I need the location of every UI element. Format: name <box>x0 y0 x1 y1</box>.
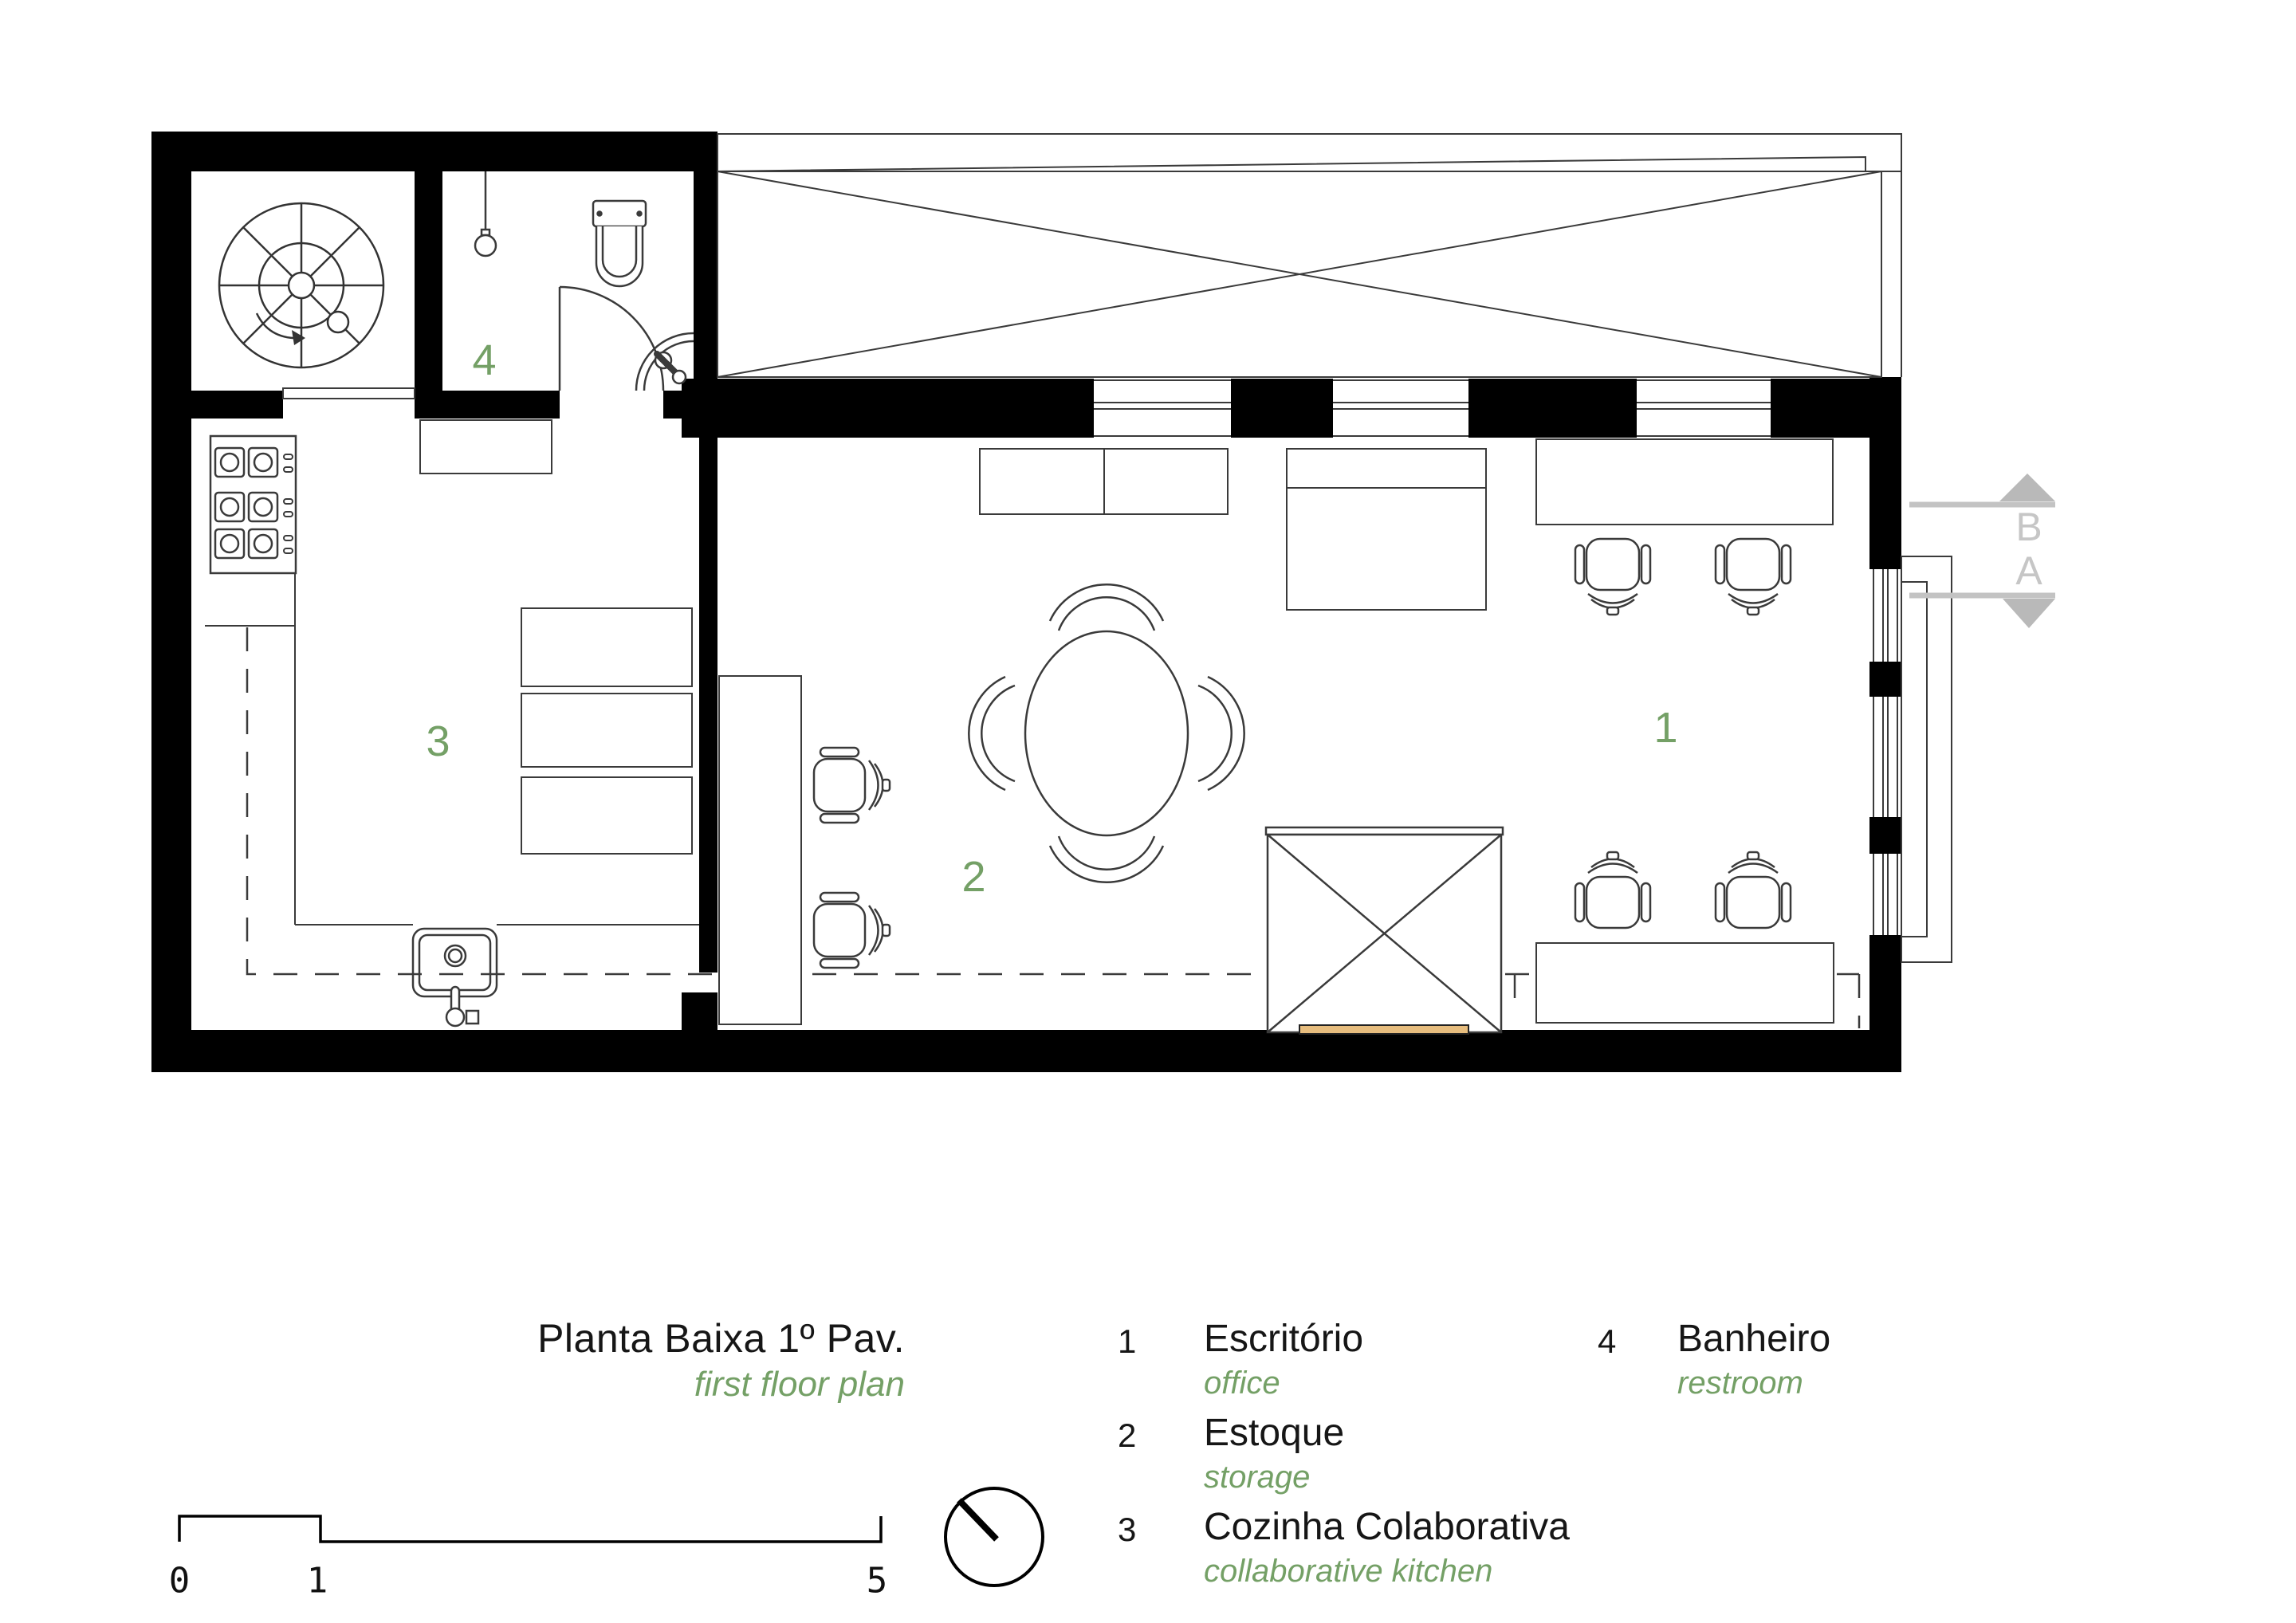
floor-plan-page: 1 2 3 4 B A Planta Baixa 1º Pav. first f… <box>0 0 2296 1623</box>
windows-right-wall <box>1873 569 1897 935</box>
office-chair <box>1575 852 1650 928</box>
stair-ledge <box>283 388 415 399</box>
legend-name: Cozinha Colaborativa <box>1204 1507 1570 1547</box>
section-letter-b: B <box>2015 504 2042 550</box>
legend-number: 2 <box>1118 1413 1204 1455</box>
legend-translation: storage <box>1204 1461 1344 1493</box>
page-subtitle: first floor plan <box>399 1366 905 1404</box>
table-chair <box>1198 677 1244 790</box>
room-label-kitchen: 3 <box>426 717 450 766</box>
legend-item-office: 1 Escritório office <box>1118 1319 1363 1399</box>
legend-name: Estoque <box>1204 1413 1344 1453</box>
bathroom-door <box>560 287 663 391</box>
walls <box>151 132 1901 1072</box>
side-cabinet <box>1287 449 1486 610</box>
office-chair <box>814 748 890 823</box>
section-letter-a: A <box>2015 548 2042 594</box>
table-chair <box>1050 584 1163 631</box>
void-hatched-area <box>717 134 1901 377</box>
office-chair <box>1575 539 1650 615</box>
legend-item-storage: 2 Estoque storage <box>1118 1413 1344 1493</box>
title-block: Planta Baixa 1º Pav. first floor plan <box>399 1317 905 1404</box>
office-chair <box>1716 539 1791 615</box>
legend-item-kitchen: 3 Cozinha Colaborativa collaborative kit… <box>1118 1507 1570 1587</box>
table-chair <box>969 677 1015 790</box>
legend-name: Banheiro <box>1677 1319 1830 1359</box>
room-label-office: 1 <box>1653 703 1678 753</box>
section-arrow-down-icon <box>2003 599 2055 628</box>
storage-desk <box>719 676 801 1024</box>
windows-middle-wall <box>1094 380 1771 436</box>
round-table <box>1025 631 1188 835</box>
legend-translation: restroom <box>1677 1367 1830 1399</box>
kitchen-sink <box>413 929 497 1026</box>
legend-item-restroom: 4 Banheiro restroom <box>1598 1319 1830 1399</box>
scale-label-0: 0 <box>169 1561 191 1601</box>
kitchen-cabinets <box>521 608 692 854</box>
office-desk-bottom <box>1536 943 1834 1023</box>
scale-label-5: 5 <box>867 1561 888 1601</box>
wall-cabinet <box>980 449 1228 514</box>
north-arrow-icon <box>946 1488 1043 1586</box>
legend-number: 3 <box>1118 1507 1204 1549</box>
scale-bar <box>179 1516 881 1542</box>
section-arrow-up-icon <box>1999 474 2055 501</box>
stove-cooktop <box>210 436 296 573</box>
legend-number: 4 <box>1598 1319 1677 1361</box>
wood-threshold <box>1299 1025 1468 1034</box>
spiral-staircase <box>219 203 383 367</box>
hatched-box <box>1266 827 1503 1034</box>
scale-label-1: 1 <box>307 1561 328 1601</box>
office-chair <box>814 893 890 968</box>
legend-name: Escritório <box>1204 1319 1363 1359</box>
legend-translation: collaborative kitchen <box>1204 1555 1570 1587</box>
balcony-outline <box>1901 556 1952 962</box>
page-title: Planta Baixa 1º Pav. <box>399 1317 905 1361</box>
legend-translation: office <box>1204 1367 1363 1399</box>
legend-number: 1 <box>1118 1319 1204 1361</box>
shower-head-light <box>475 171 496 256</box>
office-desk-top <box>1536 439 1833 525</box>
room-label-restroom: 4 <box>472 336 497 385</box>
toilet <box>593 201 646 286</box>
range-hood <box>420 420 552 474</box>
office-chair <box>1716 852 1791 928</box>
room-label-storage: 2 <box>961 852 986 902</box>
stove-knobs <box>284 454 293 553</box>
table-chair <box>1050 836 1163 882</box>
